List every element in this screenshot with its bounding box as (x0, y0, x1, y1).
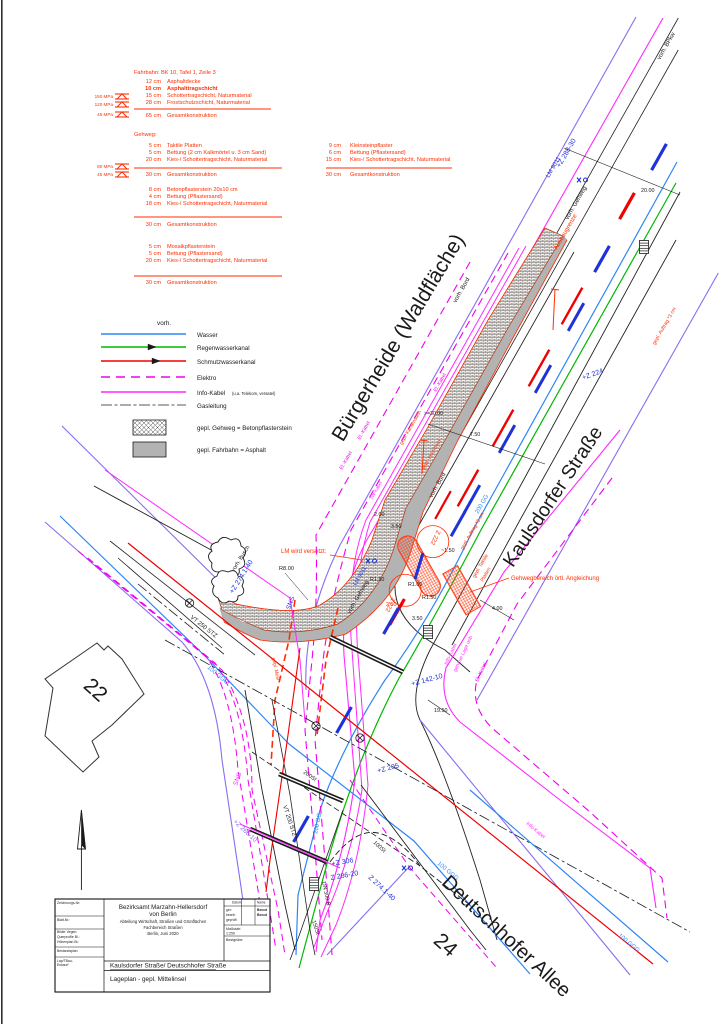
svg-text:Bestgrübe:: Bestgrübe: (226, 938, 243, 942)
svg-text:5 cm: 5 cm (149, 143, 161, 149)
svg-text:Entwurf: Entwurf (57, 963, 69, 967)
svg-text:8 cm: 8 cm (149, 187, 161, 193)
svg-text:20 cm: 20 cm (146, 258, 162, 264)
svg-text:5 cm: 5 cm (149, 150, 161, 156)
svg-text:Elektro: Elektro (197, 375, 217, 382)
svg-text:Betonpflasterstein 20x10 cm: Betonpflasterstein 20x10 cm (167, 187, 238, 193)
svg-text:150 MPa: 150 MPa (95, 94, 114, 99)
svg-text:Asphalttragschicht: Asphalttragschicht (167, 86, 218, 92)
svg-text:80 MPa: 80 MPa (97, 164, 113, 169)
svg-text:Querprofile Bl.:: Querprofile Bl.: (57, 935, 80, 939)
svg-text:Kies-/ Schottertragschicht, Na: Kies-/ Schottertragschicht, Naturmateria… (167, 201, 267, 207)
svg-text:Kleinsteinpflaster: Kleinsteinpflaster (350, 143, 393, 149)
svg-text:Asphaltdecke: Asphaltdecke (167, 79, 201, 85)
svg-text:(u.a. Telekom, versatel): (u.a. Telekom, versatel) (232, 391, 276, 396)
svg-text:Gesamtkonstruktion: Gesamtkonstruktion (167, 222, 217, 228)
svg-text:15 cm: 15 cm (146, 93, 162, 99)
svg-text:1:250: 1:250 (226, 932, 235, 936)
svg-text:Kies-/ Schottertragschicht, Na: Kies-/ Schottertragschicht, Naturmateria… (167, 258, 267, 264)
svg-text:Kaulsdorfer Straße/ Deutschhof: Kaulsdorfer Straße/ Deutschhofer Straße (110, 963, 227, 970)
svg-text:10 cm: 10 cm (145, 86, 161, 92)
svg-text:Abteilung Wirtschaft, Straßen: Abteilung Wirtschaft, Straßen und Grünfl… (120, 919, 207, 924)
svg-text:Gehweg:: Gehweg: (134, 132, 157, 138)
svg-text:19.50: 19.50 (434, 708, 448, 714)
svg-text:Gesamtkonstruktion: Gesamtkonstruktion (167, 172, 217, 178)
svg-text:Schottertragschicht, Naturmate: Schottertragschicht, Naturmaterial (167, 93, 252, 99)
svg-text:2.00: 2.00 (374, 512, 385, 518)
svg-text:Zeichnungs-Nr:: Zeichnungs-Nr: (57, 901, 80, 905)
svg-text:Wasser: Wasser (197, 332, 218, 339)
svg-text:~1.50: ~1.50 (441, 548, 455, 554)
svg-text:4.00: 4.00 (492, 606, 503, 612)
svg-text:Taktile Platten: Taktile Platten (167, 143, 202, 149)
svg-text:R1.50: R1.50 (370, 577, 384, 583)
svg-text:28 cm: 28 cm (146, 100, 162, 106)
svg-text:gepl. Gehweg = Betonpflasterst: gepl. Gehweg = Betonpflasterstein (197, 425, 292, 432)
svg-text:Regenwasserkanal: Regenwasserkanal (197, 345, 250, 352)
svg-text:von Berlin: von Berlin (149, 911, 177, 918)
svg-text:Bettung (Pflastersand): Bettung (Pflastersand) (350, 150, 406, 156)
svg-text:Gesamtkonstruktion: Gesamtkonstruktion (167, 113, 217, 119)
svg-text:6 cm: 6 cm (329, 150, 341, 156)
svg-text:Gasleitung: Gasleitung (197, 403, 227, 410)
svg-text:Schmutzwasserkanal: Schmutzwasserkanal (197, 359, 255, 366)
svg-text:Info-Kabel: Info-Kabel (197, 390, 225, 397)
svg-text:20 cm: 20 cm (146, 157, 162, 163)
svg-text:30 cm: 30 cm (146, 280, 162, 286)
svg-text:5 cm: 5 cm (149, 251, 161, 257)
svg-text:12 cm: 12 cm (146, 79, 162, 85)
svg-text:R1.00: R1.00 (408, 582, 422, 588)
svg-text:Datum: Datum (232, 901, 242, 905)
svg-text:R1.50: R1.50 (422, 595, 436, 601)
svg-text:Bezirksamt Marzahn-Hellersdorf: Bezirksamt Marzahn-Hellersdorf (119, 904, 208, 911)
svg-text:3.50: 3.50 (412, 616, 423, 622)
svg-text:18 cm: 18 cm (146, 201, 162, 207)
svg-text:geprüft: geprüft (226, 918, 237, 922)
svg-text:9 cm: 9 cm (329, 143, 341, 149)
svg-text:4 cm: 4 cm (149, 194, 161, 200)
svg-text:Name: Name (257, 901, 266, 905)
svg-text:45 MPa: 45 MPa (97, 172, 113, 177)
svg-text:Gehwegbereich örtl. Angleichun: Gehwegbereich örtl. Angleichung (511, 576, 599, 582)
svg-text:Höhenplan Bl.:: Höhenplan Bl.: (57, 940, 79, 944)
svg-text:30 cm: 30 cm (326, 172, 342, 178)
svg-text:Gesamtkonstruktion: Gesamtkonstruktion (167, 280, 217, 286)
svg-text:30 cm: 30 cm (146, 222, 162, 228)
svg-text:Bettung (Pflastersand): Bettung (Pflastersand) (167, 194, 223, 200)
svg-text:Lageplan - gepl. Mittelinsel: Lageplan - gepl. Mittelinsel (110, 976, 186, 983)
svg-text:Beccd: Beccd (257, 913, 267, 917)
svg-text:gepl. Fahrbahn = Asphalt: gepl. Fahrbahn = Asphalt (197, 447, 266, 454)
svg-text:Blatt-Nr.:: Blatt-Nr.: (57, 918, 70, 922)
svg-text:>=30.00: >=30.00 (424, 411, 443, 417)
svg-text:30 cm: 30 cm (146, 172, 162, 178)
svg-text:bearb:: bearb: (226, 913, 236, 917)
svg-text:ger:: ger: (226, 908, 232, 912)
svg-text:20.00: 20.00 (641, 188, 655, 194)
svg-text:5 cm: 5 cm (149, 244, 161, 250)
svg-text:R8.00: R8.00 (279, 566, 294, 572)
svg-text:LM wird versetzt:: LM wird versetzt: (281, 549, 327, 555)
svg-text:Kies-/ Schottertragschicht, Na: Kies-/ Schottertragschicht, Naturmateria… (167, 157, 267, 163)
svg-text:Maßstab:: Maßstab: (226, 927, 241, 931)
svg-text:Bettung (2 cm Kalkmörtel u. 3: Bettung (2 cm Kalkmörtel u. 3 cm Sand) (167, 150, 266, 156)
svg-text:15 cm: 15 cm (326, 157, 342, 163)
svg-text:65 cm: 65 cm (146, 113, 162, 119)
svg-text:Beccd: Beccd (257, 908, 267, 912)
svg-text:120 MPa: 120 MPa (95, 102, 114, 107)
svg-text:Bilder Vegen:: Bilder Vegen: (57, 930, 77, 934)
svg-text:Bestandsplan: Bestandsplan (57, 949, 78, 953)
svg-text:Kies-/ Schottertragschicht, Na: Kies-/ Schottertragschicht, Naturmateria… (350, 157, 450, 163)
svg-text:vorh.: vorh. (157, 320, 171, 327)
svg-text:3.50: 3.50 (391, 524, 402, 530)
svg-text:Fahrbahn: BK 10, Tafel 1, Zeil: Fahrbahn: BK 10, Tafel 1, Zeile 3 (134, 70, 216, 76)
svg-text:Gesamtkonstruktion: Gesamtkonstruktion (350, 172, 400, 178)
svg-text:Mosaikpflasterstein: Mosaikpflasterstein (167, 244, 215, 250)
svg-text:7.50: 7.50 (470, 432, 480, 438)
svg-text:Bettung (Pflastersand): Bettung (Pflastersand) (167, 251, 223, 257)
svg-text:Berlin, Juni 2020: Berlin, Juni 2020 (147, 931, 179, 936)
svg-text:Frostschutzschicht, Naturmater: Frostschutzschicht, Naturmaterial (167, 100, 250, 106)
svg-text:45 MPa: 45 MPa (97, 112, 113, 117)
svg-text:Fachbereich Straßen: Fachbereich Straßen (143, 925, 183, 930)
